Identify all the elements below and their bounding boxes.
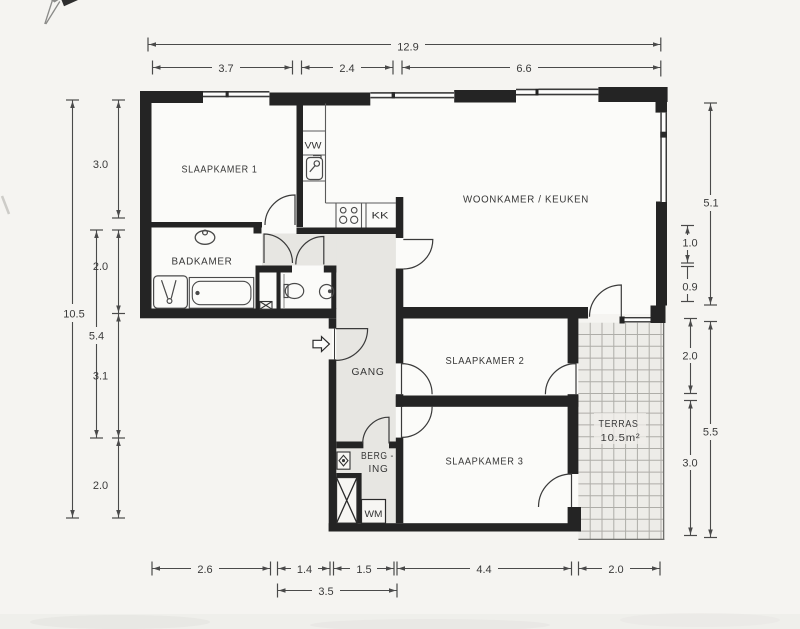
svg-text:5.1: 5.1	[703, 198, 718, 210]
svg-text:3.5: 3.5	[318, 586, 333, 598]
svg-text:2.4: 2.4	[339, 63, 354, 75]
svg-text:2.0: 2.0	[93, 480, 108, 492]
svg-text:1.0: 1.0	[682, 238, 697, 250]
svg-text:GANG: GANG	[352, 367, 385, 378]
svg-text:SLAAPKAMER 1: SLAAPKAMER 1	[182, 165, 258, 176]
svg-text:5.5: 5.5	[703, 427, 718, 439]
svg-text:ING: ING	[369, 464, 389, 475]
svg-text:2.0: 2.0	[608, 564, 623, 576]
svg-text:3.7: 3.7	[218, 63, 233, 75]
svg-text:1.4: 1.4	[297, 564, 312, 576]
svg-text:WM: WM	[365, 509, 383, 520]
svg-text:3.0: 3.0	[93, 159, 108, 171]
svg-text:VW: VW	[305, 141, 322, 152]
svg-text:2.0: 2.0	[93, 261, 108, 273]
svg-text:10.5m²: 10.5m²	[601, 433, 641, 444]
svg-text:BADKAMER: BADKAMER	[172, 257, 233, 268]
svg-text:SLAAPKAMER 3: SLAAPKAMER 3	[446, 457, 524, 468]
svg-text:10.5: 10.5	[63, 309, 84, 321]
svg-text:1.5: 1.5	[356, 564, 371, 576]
svg-text:5.4: 5.4	[89, 331, 104, 343]
svg-text:3.0: 3.0	[682, 458, 697, 470]
svg-text:KK: KK	[372, 211, 390, 222]
svg-text:2.0: 2.0	[682, 351, 697, 363]
svg-text:WOONKAMER / KEUKEN: WOONKAMER / KEUKEN	[463, 195, 589, 206]
svg-text:6.6: 6.6	[516, 63, 531, 75]
svg-text:SLAAPKAMER 2: SLAAPKAMER 2	[446, 356, 525, 367]
svg-text:3.1: 3.1	[93, 371, 108, 383]
svg-text:4.4: 4.4	[476, 564, 491, 576]
svg-text:BERG -: BERG -	[361, 451, 394, 462]
svg-text:12.9: 12.9	[397, 42, 418, 54]
svg-text:2.6: 2.6	[197, 564, 212, 576]
svg-text:0.9: 0.9	[682, 282, 697, 294]
svg-text:TERRAS: TERRAS	[599, 419, 639, 430]
